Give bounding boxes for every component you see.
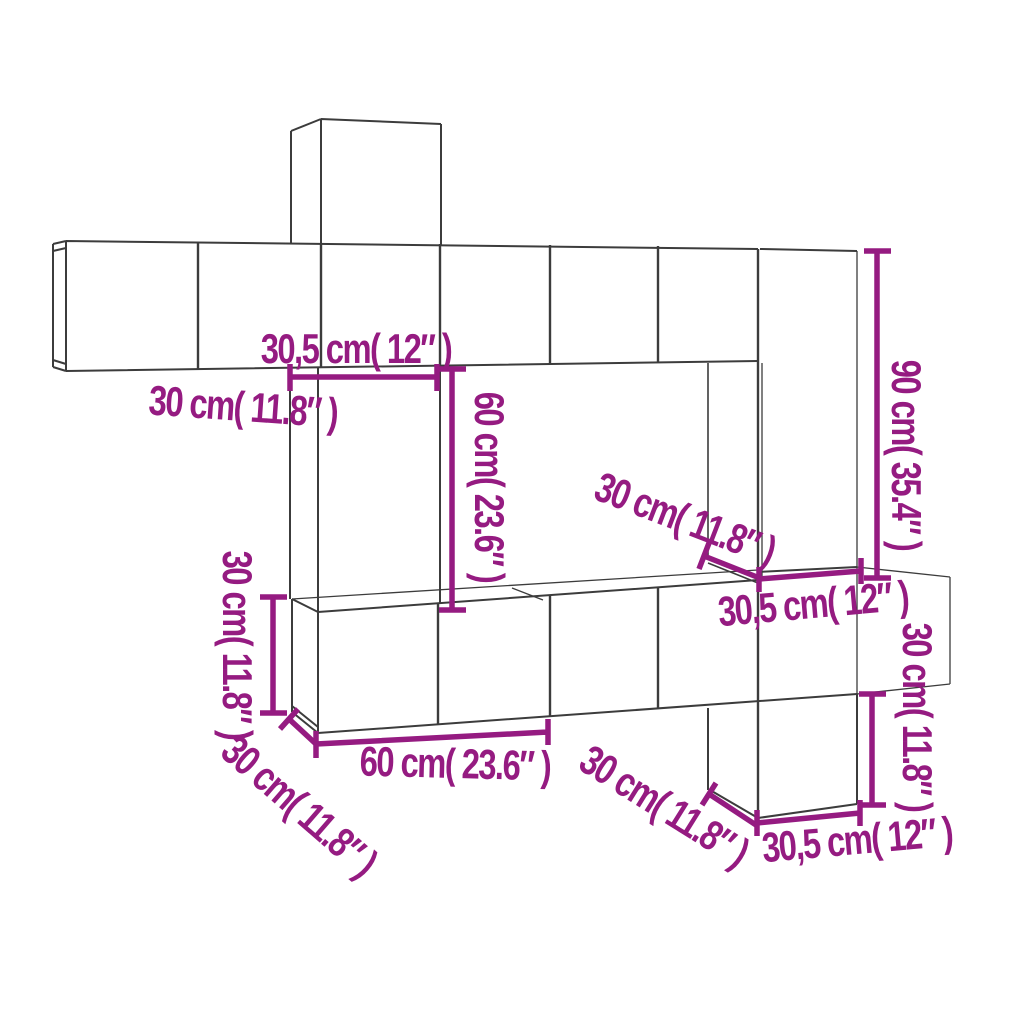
dim-line-row-height-left <box>260 597 287 713</box>
dim-label-left-cabinet-height: 60 cm( 23.6″ ) <box>468 392 510 583</box>
dimension-diagram: 30,5 cm( 12″ ) 30 cm( 11.8″ ) 60 cm( 23.… <box>0 0 1024 1024</box>
dim-label-bottom-cabinet-height: 30 cm( 11.8″ ) <box>896 623 938 812</box>
dim-label-row-height-left: 30 cm( 11.8″ ) <box>216 551 258 740</box>
dim-line-bottom-cabinet-height <box>859 694 886 805</box>
dim-line-left-cabinet-height <box>439 369 466 610</box>
dim-label-tall-cabinet-height: 90 cm( 35.4″ ) <box>885 360 927 551</box>
dim-label-top-width: 30,5 cm( 12″ ) <box>261 328 452 370</box>
dim-label-row-width-bottom: 60 cm( 23.6″ ) <box>359 741 551 788</box>
